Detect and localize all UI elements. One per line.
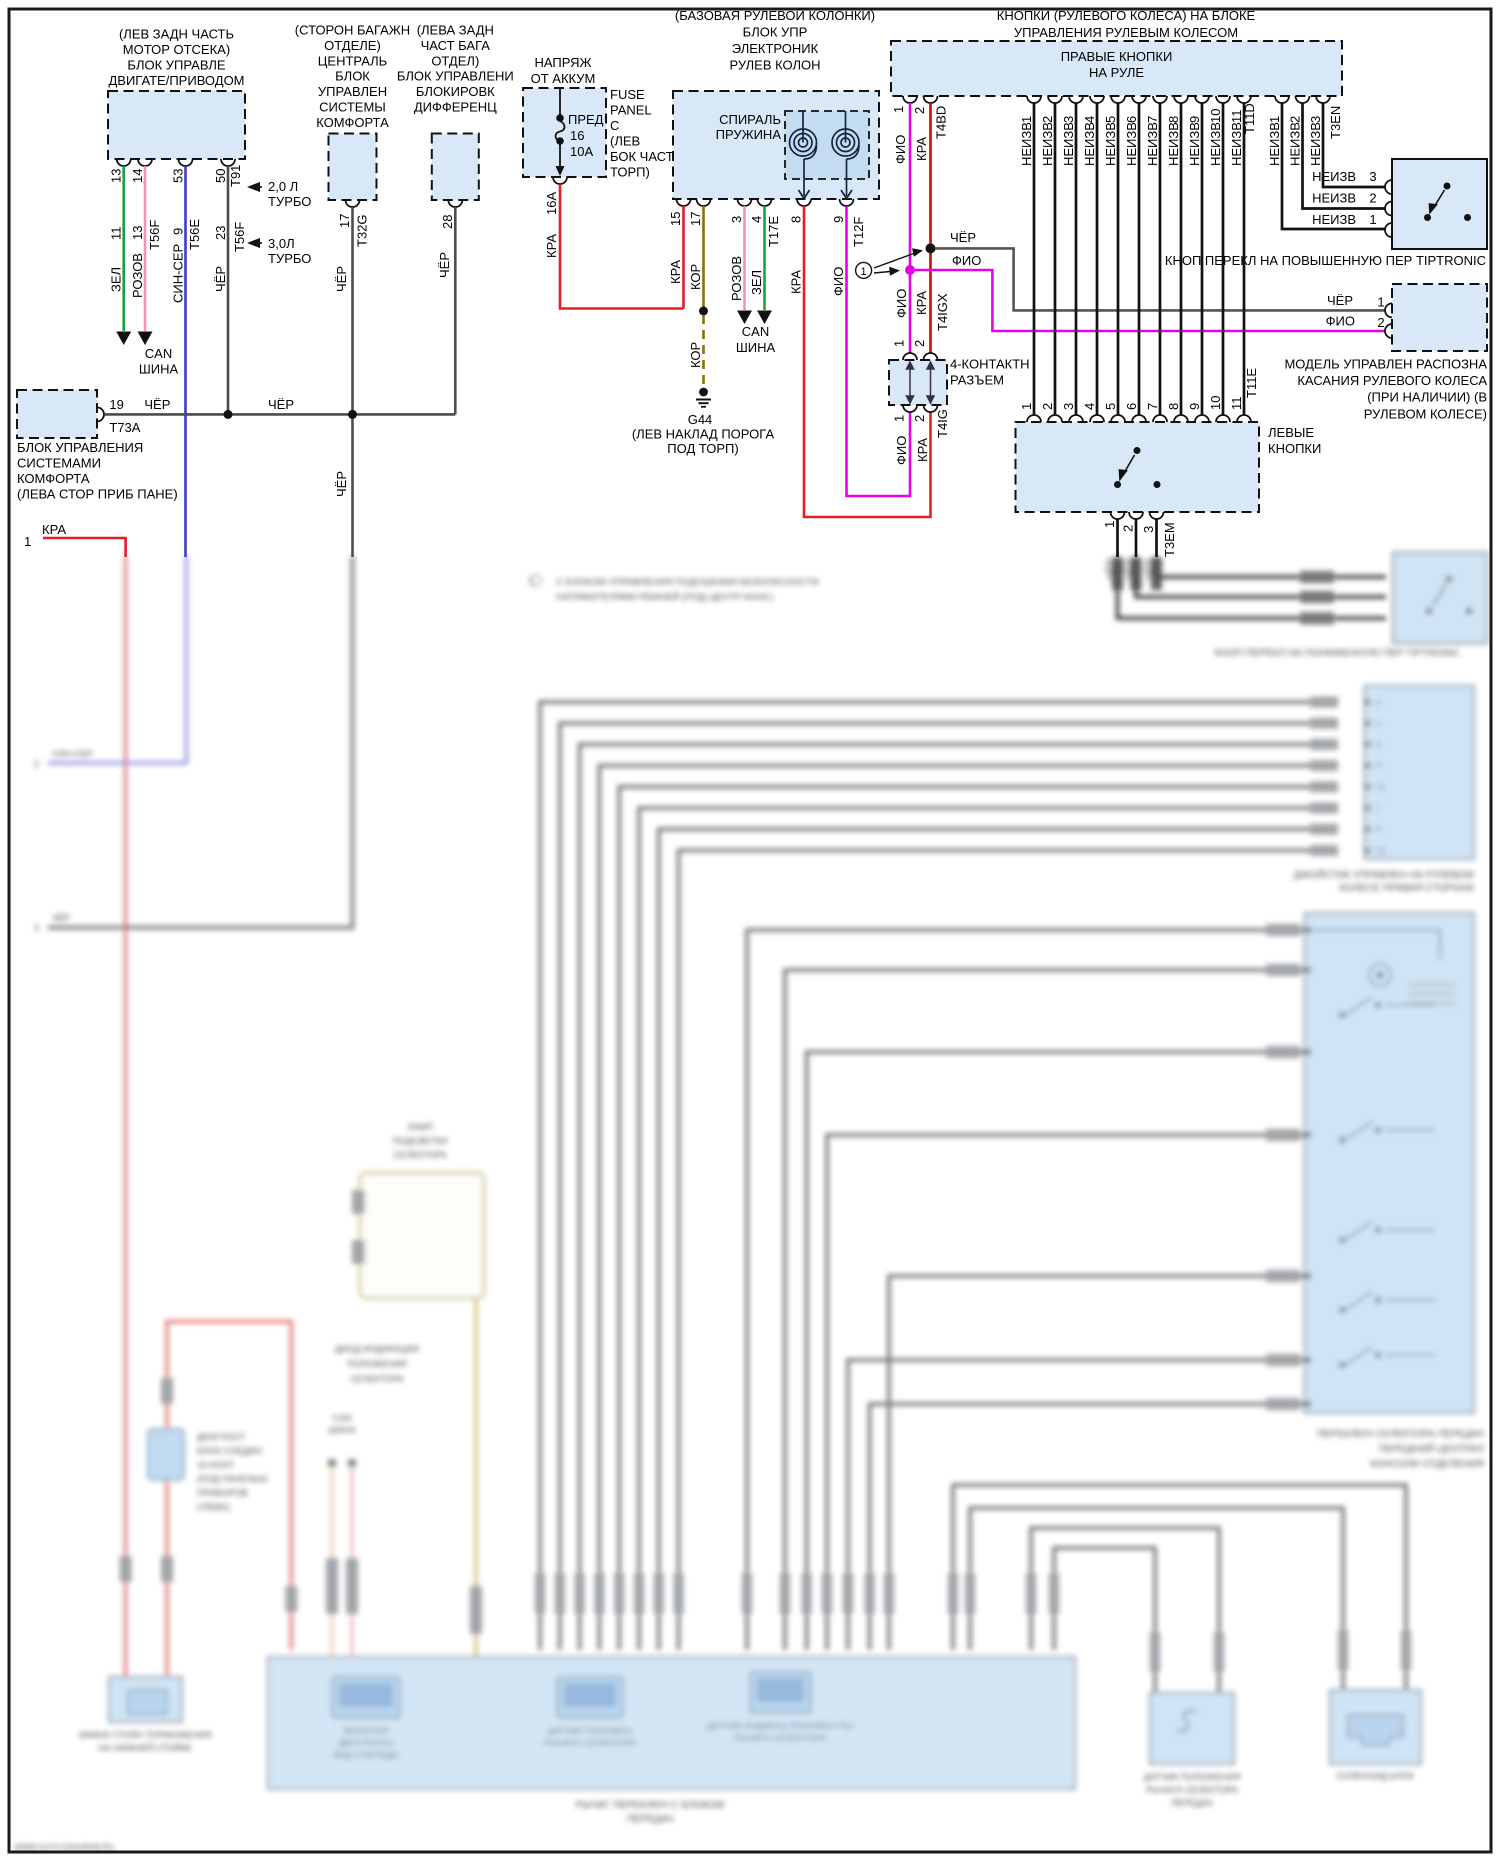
svg-text:ДИФФЕРЕНЦ: ДИФФЕРЕНЦ — [414, 100, 497, 115]
svg-text:ЧЁР: ЧЁР — [144, 397, 170, 412]
svg-text:1: 1 — [1019, 403, 1034, 410]
svg-text:2: 2 — [1288, 116, 1303, 123]
svg-text:РЫЧАГА СЕЛЕКТОРА: РЫЧАГА СЕЛЕКТОРА — [1146, 1785, 1238, 1795]
svg-text:НЕИЗВ: НЕИЗВ — [1145, 122, 1160, 166]
svg-text:TIPTRONIC: TIPTRONIC — [1406, 648, 1460, 659]
svg-text:T32G: T32G — [355, 214, 370, 247]
svg-text:ФИО: ФИО — [894, 436, 909, 465]
svg-text:9: 9 — [1187, 403, 1202, 410]
svg-text:(ПРИ НАЛИЧИИ) (В: (ПРИ НАЛИЧИИ) (В — [1367, 390, 1487, 405]
svg-text:T56F: T56F — [232, 222, 247, 252]
svg-text:T56F: T56F — [147, 220, 162, 250]
svg-text:НЕИЗВ: НЕИЗВ — [1288, 122, 1303, 166]
svg-text:ПЕРЕДНИЙ ЦЕНТРАЛ: ПЕРЕДНИЙ ЦЕНТРАЛ — [1379, 1442, 1484, 1455]
svg-text:14: 14 — [130, 169, 145, 183]
svg-text:13: 13 — [130, 226, 145, 240]
svg-text:КОР: КОР — [688, 264, 703, 290]
svg-text:3,0Л: 3,0Л — [268, 236, 295, 251]
svg-text:ПОДСВЕТКИ: ПОДСВЕТКИ — [392, 1136, 447, 1146]
svg-text:ДАТЧИК ПОЛОЖЕН: ДАТЧИК ПОЛОЖЕН — [548, 1726, 632, 1736]
svg-text:13: 13 — [109, 169, 124, 183]
svg-text:МОТОР ОТСЕКА): МОТОР ОТСЕКА) — [123, 42, 230, 57]
svg-text:КОНСОЛИ ОТДЕЛЕНИЯ: КОНСОЛИ ОТДЕЛЕНИЯ — [1370, 1459, 1484, 1470]
svg-text:ШИНА: ШИНА — [328, 1425, 355, 1435]
svg-text:1: 1 — [24, 534, 31, 549]
svg-text:ТУРБО: ТУРБО — [268, 194, 311, 209]
svg-text:ПРУЖИНА: ПРУЖИНА — [716, 127, 782, 142]
svg-text:T91: T91 — [228, 165, 243, 187]
svg-text:ЧЁР: ЧЁР — [334, 266, 349, 292]
svg-text:6: 6 — [1376, 740, 1381, 749]
svg-text:16А: 16А — [544, 192, 559, 215]
svg-text:ДАТЧИК ПОЛОЖЕНИЯ: ДАТЧИК ПОЛОЖЕНИЯ — [1144, 1772, 1241, 1782]
svg-text:КРА: КРА — [544, 234, 559, 258]
svg-text:ПОЛОЖЕНИЯ: ПОЛОЖЕНИЯ — [347, 1359, 407, 1369]
svg-text:6: 6 — [1124, 116, 1139, 123]
svg-text:НАТЯЖИТЕЛЯМИ РЕМНЕЙ (ПОД ЦЕНТР: НАТЯЖИТЕЛЯМИ РЕМНЕЙ (ПОД ЦЕНТР КОНС) — [556, 591, 773, 603]
svg-text:ПЕРЕДАЧ: ПЕРЕДАЧ — [1171, 1798, 1213, 1808]
svg-text:РЫЧАГ ПЕРЕКЛЮЧ С БЛОКОМ: РЫЧАГ ПЕРЕКЛЮЧ С БЛОКОМ — [576, 1800, 725, 1811]
svg-text:11: 11 — [1229, 397, 1244, 411]
svg-text:ОТ АККУМ: ОТ АККУМ — [531, 71, 596, 86]
svg-text:10: 10 — [1376, 846, 1385, 855]
svg-text:БЛОК УПРАВЛЕНИ: БЛОК УПРАВЛЕНИ — [397, 69, 514, 84]
svg-text:8: 8 — [1166, 116, 1181, 123]
svg-text:СЕЛЕКТОРА: СЕЛЕКТОРА — [350, 1374, 403, 1384]
svg-text:ФИО: ФИО — [894, 289, 909, 318]
svg-text:T73A: T73A — [109, 420, 140, 435]
svg-text:КОР: КОР — [688, 342, 703, 368]
svg-text:ЛЕВЫЕ: ЛЕВЫЕ — [1268, 425, 1314, 440]
svg-text:8: 8 — [789, 216, 804, 223]
svg-text:(ЛЕВА ЗАДН: (ЛЕВА ЗАДН — [417, 23, 494, 38]
svg-text:ЦЕНТРАЛЬ: ЦЕНТРАЛЬ — [318, 53, 387, 68]
svg-text:4: 4 — [749, 216, 764, 223]
svg-text:НЕИЗВ: НЕИЗВ — [1308, 122, 1323, 166]
svg-text:ФИО: ФИО — [1326, 314, 1355, 329]
svg-text:ШИНА: ШИНА — [736, 340, 776, 355]
svg-text:ЧЁР: ЧЁР — [1144, 558, 1156, 580]
svg-text:РОЗОВ: РОЗОВ — [130, 253, 145, 298]
svg-text:T4IGX: T4IGX — [935, 293, 950, 331]
svg-text:2: 2 — [1040, 116, 1055, 123]
svg-text:CAN: CAN — [145, 346, 172, 361]
svg-text:T3EN: T3EN — [1328, 106, 1343, 139]
svg-text:1: 1 — [861, 266, 867, 278]
svg-text:1: 1 — [1267, 116, 1282, 123]
svg-text:28: 28 — [440, 215, 455, 229]
svg-text:T11E: T11E — [1244, 368, 1259, 398]
svg-text:ЧЁР: ЧЁР — [52, 913, 70, 923]
svg-text:ПРИБОРОВ: ПРИБОРОВ — [197, 1488, 248, 1498]
svg-text:T56E: T56E — [187, 219, 202, 250]
svg-text:2: 2 — [1377, 315, 1384, 330]
svg-text:НЕИЗВ: НЕИЗВ — [1208, 122, 1223, 166]
svg-text:1: 1 — [1376, 719, 1381, 728]
svg-text:КНОП ПЕРЕКЛ НА ПОВЫШЕННУЮ ПЕР: КНОП ПЕРЕКЛ НА ПОВЫШЕННУЮ ПЕР TIPTRONIC — [1165, 253, 1486, 268]
svg-text:БЛОК УПР: БЛОК УПР — [743, 25, 808, 40]
svg-text:3: 3 — [729, 216, 744, 223]
svg-text:НЕИЗВ: НЕИЗВ — [1082, 122, 1097, 166]
svg-text:НЕИЗВ: НЕИЗВ — [1166, 122, 1181, 166]
svg-text:ВИД СПЕРЕДИ: ВИД СПЕРЕДИ — [334, 1750, 399, 1760]
svg-text:НЕИЗВ: НЕИЗВ — [1124, 122, 1139, 166]
svg-text:СОЛЕНОИД БЛОК: СОЛЕНОИД БЛОК — [1336, 1771, 1414, 1781]
svg-text:ФИО: ФИО — [893, 135, 908, 164]
svg-text:БЛОК УПРАВЛЕНИЯ: БЛОК УПРАВЛЕНИЯ — [17, 440, 143, 455]
svg-text:3: 3 — [1141, 526, 1156, 533]
svg-text:CAN: CAN — [332, 1413, 351, 1423]
svg-text:КНОПКИ (РУЛЕВОГО КОЛЕСА) НА БЛ: КНОПКИ (РУЛЕВОГО КОЛЕСА) НА БЛОКЕ — [997, 8, 1256, 23]
svg-text:G44: G44 — [688, 412, 713, 427]
svg-text:ДАТЧИК ИНДИКАЦ ПОЛОЖЕН РЫ: ДАТЧИК ИНДИКАЦ ПОЛОЖЕН РЫ — [707, 1721, 853, 1731]
svg-text:17: 17 — [337, 214, 352, 228]
svg-text:T12F: T12F — [851, 217, 866, 247]
svg-text:СИН-СЕР: СИН-СЕР — [170, 244, 185, 303]
svg-text:КРА: КРА — [914, 291, 929, 315]
svg-text:PANEL: PANEL — [610, 103, 652, 118]
svg-text:НЕИЗВ: НЕИЗВ — [1103, 122, 1118, 166]
svg-text:5: 5 — [1103, 403, 1118, 410]
svg-text:ЧЁР: ЧЁР — [1124, 558, 1136, 580]
svg-text:ЧЁР: ЧЁР — [334, 471, 349, 497]
svg-text:ПОД ТОРП): ПОД ТОРП) — [667, 441, 738, 456]
svg-text:ФИО: ФИО — [952, 253, 981, 268]
svg-text:2: 2 — [1040, 403, 1055, 410]
svg-text:НА НИЖНЕЙ СТОЙКЕ: НА НИЖНЕЙ СТОЙКЕ — [98, 1742, 192, 1753]
svg-text:БЛОКИРОВК: БЛОКИРОВК — [416, 84, 495, 99]
svg-text:КОЛЕСЕ ПРАВАЯ СТОРОНА: КОЛЕСЕ ПРАВАЯ СТОРОНА — [1339, 883, 1474, 894]
svg-text:1: 1 — [892, 415, 907, 422]
svg-text:ПЕРЕКЛЮЧ СЕЛЕКТОРА ПЕРЕДАЧ: ПЕРЕКЛЮЧ СЕЛЕКТОРА ПЕРЕДАЧ — [1317, 1429, 1484, 1440]
svg-text:CAN: CAN — [742, 324, 769, 339]
svg-text:17: 17 — [688, 212, 703, 226]
svg-text:НЕИЗВ: НЕИЗВ — [1040, 122, 1055, 166]
svg-text:T4BD: T4BD — [934, 106, 949, 139]
svg-text:КРА: КРА — [915, 438, 930, 462]
svg-text:КНОПКИ: КНОПКИ — [1268, 441, 1321, 456]
svg-text:4: 4 — [1082, 403, 1097, 410]
svg-text:КРА: КРА — [42, 522, 66, 537]
svg-text:10: 10 — [1208, 109, 1223, 123]
svg-text:БОК ЧАСТЬ: БОК ЧАСТЬ — [610, 149, 682, 164]
svg-text:T4IG: T4IG — [935, 409, 950, 438]
svg-text:ФИО: ФИО — [831, 267, 846, 296]
svg-text:7: 7 — [1376, 804, 1381, 813]
svg-text:ДВУСТОРОН: ДВУСТОРОН — [338, 1738, 393, 1748]
svg-text:3: 3 — [1061, 116, 1076, 123]
svg-text:НАПРЯЖ: НАПРЯЖ — [534, 55, 591, 70]
svg-text:4-КОНТАКТН: 4-КОНТАКТН — [950, 357, 1030, 372]
svg-text:23: 23 — [213, 226, 228, 240]
svg-text:16-КОНТ: 16-КОНТ — [197, 1460, 235, 1470]
svg-text:ТОРП): ТОРП) — [610, 165, 650, 180]
svg-text:(ЛЕВА СТОР ПРИБ ПАНЕ): (ЛЕВА СТОР ПРИБ ПАНЕ) — [17, 487, 178, 502]
svg-text:НА РУЛЕ: НА РУЛЕ — [1089, 65, 1144, 80]
svg-text:(ПОД ПАНЕЛЬЮ: (ПОД ПАНЕЛЬЮ — [197, 1474, 268, 1484]
svg-text:53: 53 — [170, 169, 185, 183]
svg-text:ДИАГНОСТ: ДИАГНОСТ — [197, 1432, 246, 1442]
svg-text:КАСАНИЯ РУЛЕВОГО КОЛЕСА: КАСАНИЯ РУЛЕВОГО КОЛЕСА — [1297, 373, 1487, 388]
svg-text:ЗАМОК СТОЯН ТОРМОЖЕНИЯ: ЗАМОК СТОЯН ТОРМОЖЕНИЯ — [78, 1730, 211, 1740]
svg-text:НЕИЗВ: НЕИЗВ — [1312, 191, 1356, 206]
svg-text:НЕИЗВ: НЕИЗВ — [1267, 122, 1282, 166]
svg-text:1: 1 — [1369, 212, 1376, 227]
svg-text:50: 50 — [213, 169, 228, 183]
svg-text:СЕЛЕКТОРА: СЕЛЕКТОРА — [393, 1150, 446, 1160]
svg-text:ДИОД ИНДИКАЦИИ: ДИОД ИНДИКАЦИИ — [335, 1344, 419, 1354]
svg-text:T11D: T11D — [1242, 103, 1257, 134]
svg-text:FUSE: FUSE — [610, 87, 645, 102]
svg-text:ЧЁР: ЧЁР — [437, 252, 452, 278]
svg-text:9: 9 — [831, 216, 846, 223]
svg-text:ЭЛЕКТРОНИК: ЭЛЕКТРОНИК — [732, 41, 819, 56]
svg-text:4: 4 — [1376, 698, 1381, 707]
svg-text:2: 2 — [912, 107, 927, 114]
svg-text:10А: 10А — [570, 144, 593, 159]
svg-text:C: C — [610, 118, 619, 133]
svg-text:(ЛЕВ НАКЛАД ПОРОГА: (ЛЕВ НАКЛАД ПОРОГА — [632, 427, 775, 442]
svg-text:КРА: КРА — [914, 137, 929, 161]
svg-text:2: 2 — [1369, 191, 1376, 206]
svg-text:ДЖОЙСТИК УПРАВЛЕН НА РУЛЕВОМ: ДЖОЙСТИК УПРАВЛЕН НА РУЛЕВОМ — [1294, 868, 1474, 881]
svg-text:ДВИГАТЕ/ПРИВОДОМ: ДВИГАТЕ/ПРИВОДОМ — [108, 73, 244, 88]
svg-text:16: 16 — [570, 128, 584, 143]
svg-text:ЛАМП: ЛАМП — [407, 1122, 433, 1132]
svg-text:7: 7 — [1145, 403, 1160, 410]
svg-text:2: 2 — [912, 415, 927, 422]
svg-text:ШИНА: ШИНА — [139, 362, 179, 377]
svg-text:3: 3 — [34, 923, 39, 933]
svg-text:КОМФОРТА: КОМФОРТА — [316, 115, 389, 130]
svg-text:9: 9 — [1187, 116, 1202, 123]
svg-text:ЧЁР: ЧЁР — [950, 230, 976, 245]
svg-text:9: 9 — [170, 228, 185, 235]
svg-text:ЗЕЛ: ЗЕЛ — [749, 270, 764, 295]
svg-text:2: 2 — [1121, 525, 1136, 532]
svg-text:1: 1 — [529, 576, 534, 586]
svg-text:КНОП ПЕРЕКЛ НА ПОНИЖЕННУЮ ПЕР: КНОП ПЕРЕКЛ НА ПОНИЖЕННУЮ ПЕР — [1215, 648, 1405, 659]
svg-text:ЗЕЛ: ЗЕЛ — [109, 267, 124, 292]
svg-text:ПРАВЫЕ КНОПКИ: ПРАВЫЕ КНОПКИ — [1061, 49, 1173, 64]
svg-text:(ЛЕВ: (ЛЕВ — [610, 134, 640, 149]
svg-text:СПИРАЛЬ: СПИРАЛЬ — [719, 112, 781, 127]
svg-text:15: 15 — [668, 212, 683, 226]
svg-text:(БАЗОВАЯ РУЛЕВОЙ КОЛОНКИ): (БАЗОВАЯ РУЛЕВОЙ КОЛОНКИ) — [675, 8, 875, 23]
svg-text:БЛОК: БЛОК — [335, 69, 370, 84]
svg-text:ЧЁР: ЧЁР — [268, 397, 294, 412]
svg-text:РАЗЪЕМ: РАЗЪЕМ — [950, 373, 1004, 388]
svg-text:НЕИЗВ: НЕИЗВ — [1187, 122, 1202, 166]
svg-text:12: 12 — [1376, 783, 1385, 792]
svg-text:БЛОК СОЕДИН: БЛОК СОЕДИН — [197, 1446, 262, 1456]
svg-text:T3EM: T3EM — [1162, 522, 1177, 557]
svg-text:БЛОК УПРАВЛЕ: БЛОК УПРАВЛЕ — [127, 58, 225, 73]
svg-text:1: 1 — [1102, 521, 1117, 528]
svg-text:УПРАВЛЕНИЯ РУЛЕВЫМ КОЛЕСОМ: УПРАВЛЕНИЯ РУЛЕВЫМ КОЛЕСОМ — [1014, 25, 1238, 40]
svg-text:РУЛЕВ КОЛОН: РУЛЕВ КОЛОН — [729, 58, 820, 73]
svg-text:ЧЁР: ЧЁР — [1327, 293, 1353, 308]
svg-text:1: 1 — [1377, 295, 1384, 310]
svg-text:19: 19 — [109, 397, 123, 412]
svg-text:ОТДЕЛ): ОТДЕЛ) — [431, 53, 479, 68]
svg-text:10: 10 — [1208, 396, 1223, 410]
svg-text:1: 1 — [891, 106, 906, 113]
svg-text:НЕИЗВ: НЕИЗВ — [1312, 169, 1356, 184]
svg-text:ТУРБО: ТУРБО — [268, 251, 311, 266]
svg-text:РЫЧАГА СЕЛЕКТОРА: РЫЧАГА СЕЛЕКТОРА — [734, 1733, 826, 1743]
svg-text:СИСТЕМЫ: СИСТЕМЫ — [319, 100, 386, 115]
svg-text:T17E: T17E — [766, 216, 781, 247]
svg-text:ПРЕД: ПРЕД — [568, 112, 604, 127]
svg-text:(ЛЕВ ЗАДН ЧАСТЬ: (ЛЕВ ЗАДН ЧАСТЬ — [119, 27, 234, 42]
svg-text:ЧЁР: ЧЁР — [213, 266, 228, 292]
svg-text:4: 4 — [1082, 116, 1097, 123]
svg-text:НЕИЗВ: НЕИЗВ — [1312, 212, 1356, 227]
svg-text:СИН-СЕР: СИН-СЕР — [52, 749, 93, 759]
svg-text:5: 5 — [1103, 116, 1118, 123]
svg-text:МОНИТОР: МОНИТОР — [343, 1726, 389, 1736]
svg-text:С БЛОКОМ УПРАВЛЕНИЯ ПОДУШКАМИ: С БЛОКОМ УПРАВЛЕНИЯ ПОДУШКАМИ БЕЗОПАСНОС… — [556, 577, 819, 588]
svg-text:ОТДЕЛЕ): ОТДЕЛЕ) — [324, 38, 381, 53]
svg-text:2: 2 — [912, 340, 927, 347]
svg-text:(СТОРОН БАГАЖН: (СТОРОН БАГАЖН — [295, 23, 410, 38]
svg-text:СИСТЕМАМИ: СИСТЕМАМИ — [17, 456, 101, 471]
svg-text:РОЗОВ: РОЗОВ — [729, 256, 744, 301]
svg-text:3: 3 — [1061, 403, 1076, 410]
svg-text:НЕИЗВ: НЕИЗВ — [1061, 122, 1076, 166]
svg-text:1: 1 — [892, 340, 907, 347]
svg-text:3: 3 — [1376, 762, 1381, 771]
svg-text:ПЕРЕДАЧ: ПЕРЕДАЧ — [627, 1814, 674, 1825]
svg-text:11: 11 — [109, 227, 124, 241]
svg-text:КРА: КРА — [668, 260, 683, 284]
svg-text:9: 9 — [1376, 825, 1381, 834]
svg-text:РУЛЕВОМ КОЛЕСЕ): РУЛЕВОМ КОЛЕСЕ) — [1364, 406, 1487, 421]
svg-text:МОДЕЛЬ УПРАВЛЕН РАСПОЗНА: МОДЕЛЬ УПРАВЛЕН РАСПОЗНА — [1284, 357, 1487, 372]
svg-text:СЛЕВА): СЛЕВА) — [197, 1502, 230, 1512]
svg-text:КОМФОРТА: КОМФОРТА — [17, 471, 90, 486]
svg-text:7: 7 — [1145, 116, 1160, 123]
svg-text:1: 1 — [1019, 116, 1034, 123]
svg-text:3: 3 — [1308, 116, 1323, 123]
svg-text:6: 6 — [1124, 403, 1139, 410]
svg-text:КРА: КРА — [789, 270, 804, 294]
svg-text:8: 8 — [1166, 403, 1181, 410]
svg-text:2,0 Л: 2,0 Л — [268, 179, 298, 194]
svg-text:3: 3 — [1369, 169, 1376, 184]
svg-text:УПРАВЛЕН: УПРАВЛЕН — [318, 84, 387, 99]
svg-text:РЫЧАГА СЕЛЕКТОРА: РЫЧАГА СЕЛЕКТОРА — [544, 1738, 636, 1748]
svg-text:2: 2 — [34, 759, 39, 769]
svg-text:НЕИЗВ: НЕИЗВ — [1019, 122, 1034, 166]
svg-text:ЧЁР: ЧЁР — [1105, 558, 1117, 580]
svg-text:ЧАСТ БАГА: ЧАСТ БАГА — [421, 38, 491, 53]
